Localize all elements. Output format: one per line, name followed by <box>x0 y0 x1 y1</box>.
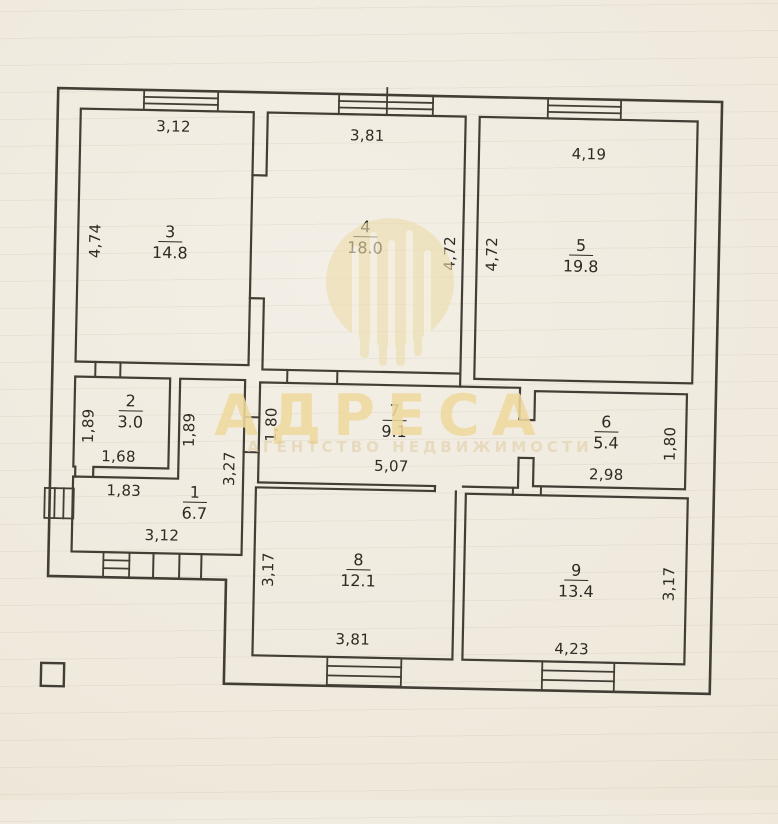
dim-room1-width: 3,12 <box>144 526 179 545</box>
dim-room9-height: 3,17 <box>660 567 679 602</box>
dim-room6-width: 2,98 <box>589 465 624 484</box>
room-5-label: 5 19.8 <box>563 236 599 275</box>
room-number: 5 <box>569 237 594 257</box>
dim-room2-width-outer: 1,83 <box>106 481 141 500</box>
room-area: 13.4 <box>558 581 594 601</box>
dim-room1-height: 3,27 <box>220 451 239 486</box>
dim-room3-height: 4,74 <box>86 223 105 258</box>
room-area: 14.8 <box>152 242 188 262</box>
room-9-label: 9 13.4 <box>558 561 594 600</box>
room-area: 18.0 <box>347 237 383 257</box>
room-area: 9.1 <box>381 421 407 441</box>
room-number: 7 <box>382 402 407 422</box>
dim-room5-height: 4,72 <box>483 237 502 272</box>
room-number: 2 <box>118 392 143 412</box>
window-room4 <box>339 87 434 116</box>
room-6-label: 6 5.4 <box>593 413 619 452</box>
dim-room4-height: 4,72 <box>441 236 460 271</box>
dim-room5-width: 4,19 <box>571 145 606 164</box>
dim-room2-height-left: 1,89 <box>79 408 98 443</box>
room-1-label: 1 6.7 <box>181 484 207 523</box>
dim-room7-width: 5,07 <box>374 457 409 476</box>
room-area: 3.0 <box>117 411 143 431</box>
window-room8 <box>327 657 402 687</box>
room-number: 9 <box>564 562 589 582</box>
window-room5 <box>548 98 621 120</box>
dim-room8-height: 3,17 <box>259 552 278 587</box>
room-number: 8 <box>346 551 371 571</box>
dim-room6-height: 1,80 <box>661 426 680 461</box>
dim-room4-width: 3,81 <box>350 126 385 145</box>
dim-room7-height: 1,80 <box>262 407 281 442</box>
room-area: 19.8 <box>563 256 599 276</box>
room-number: 1 <box>182 484 207 504</box>
dim-room3-width: 3,12 <box>156 117 191 136</box>
window-room3 <box>144 90 218 112</box>
outer-wall <box>46 88 722 694</box>
dim-room2-height-right: 1,89 <box>180 412 199 447</box>
room-area: 6.7 <box>181 503 207 523</box>
room-8-label: 8 12.1 <box>340 551 376 590</box>
window-room9 <box>542 661 615 692</box>
room-7-label: 7 9.1 <box>381 402 407 441</box>
room-number: 4 <box>353 218 378 238</box>
room-4-label: 4 18.0 <box>347 218 383 257</box>
room-2-label: 2 3.0 <box>117 392 143 431</box>
dim-room2-width-inner: 1,68 <box>101 447 136 466</box>
room-area: 12.1 <box>340 570 376 590</box>
window-entrance <box>103 552 130 578</box>
room-area: 5.4 <box>593 432 619 452</box>
dim-room9-width: 4,23 <box>554 640 589 659</box>
floorplan: 3 14.8 4 18.0 5 19.8 2 3.0 7 9.1 6 5.4 1… <box>0 0 778 808</box>
detached-square-marker <box>41 663 64 686</box>
dim-room8-width: 3,81 <box>335 630 370 649</box>
room-number: 3 <box>158 223 183 243</box>
room-number: 6 <box>594 413 619 433</box>
room-3-label: 3 14.8 <box>152 223 188 262</box>
